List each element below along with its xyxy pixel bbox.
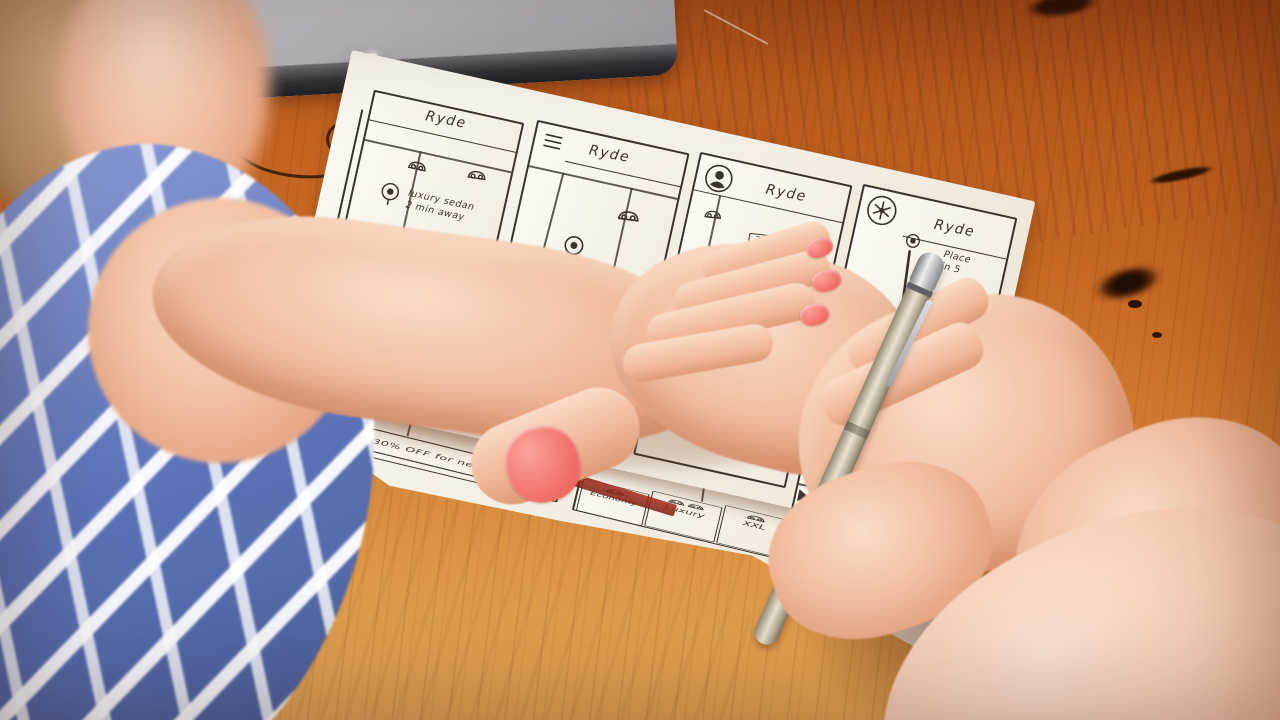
app-title: Ryde	[725, 174, 848, 213]
pen-band	[844, 421, 870, 439]
car-icon	[405, 157, 429, 174]
wood-mark	[1128, 300, 1142, 308]
location-pin-icon	[377, 180, 402, 208]
wood-mark	[1152, 332, 1162, 338]
pin-eta-label: luxury sedan 2 min away	[404, 188, 499, 232]
gear-icon	[863, 191, 901, 229]
pickup-note: Place in 5	[940, 249, 972, 279]
photo-scene: luxury sedan 2min. away Now| 6pm Enter .…	[0, 0, 1280, 720]
car-icon	[465, 166, 489, 182]
car-icon	[616, 206, 642, 224]
map-road	[365, 139, 512, 173]
